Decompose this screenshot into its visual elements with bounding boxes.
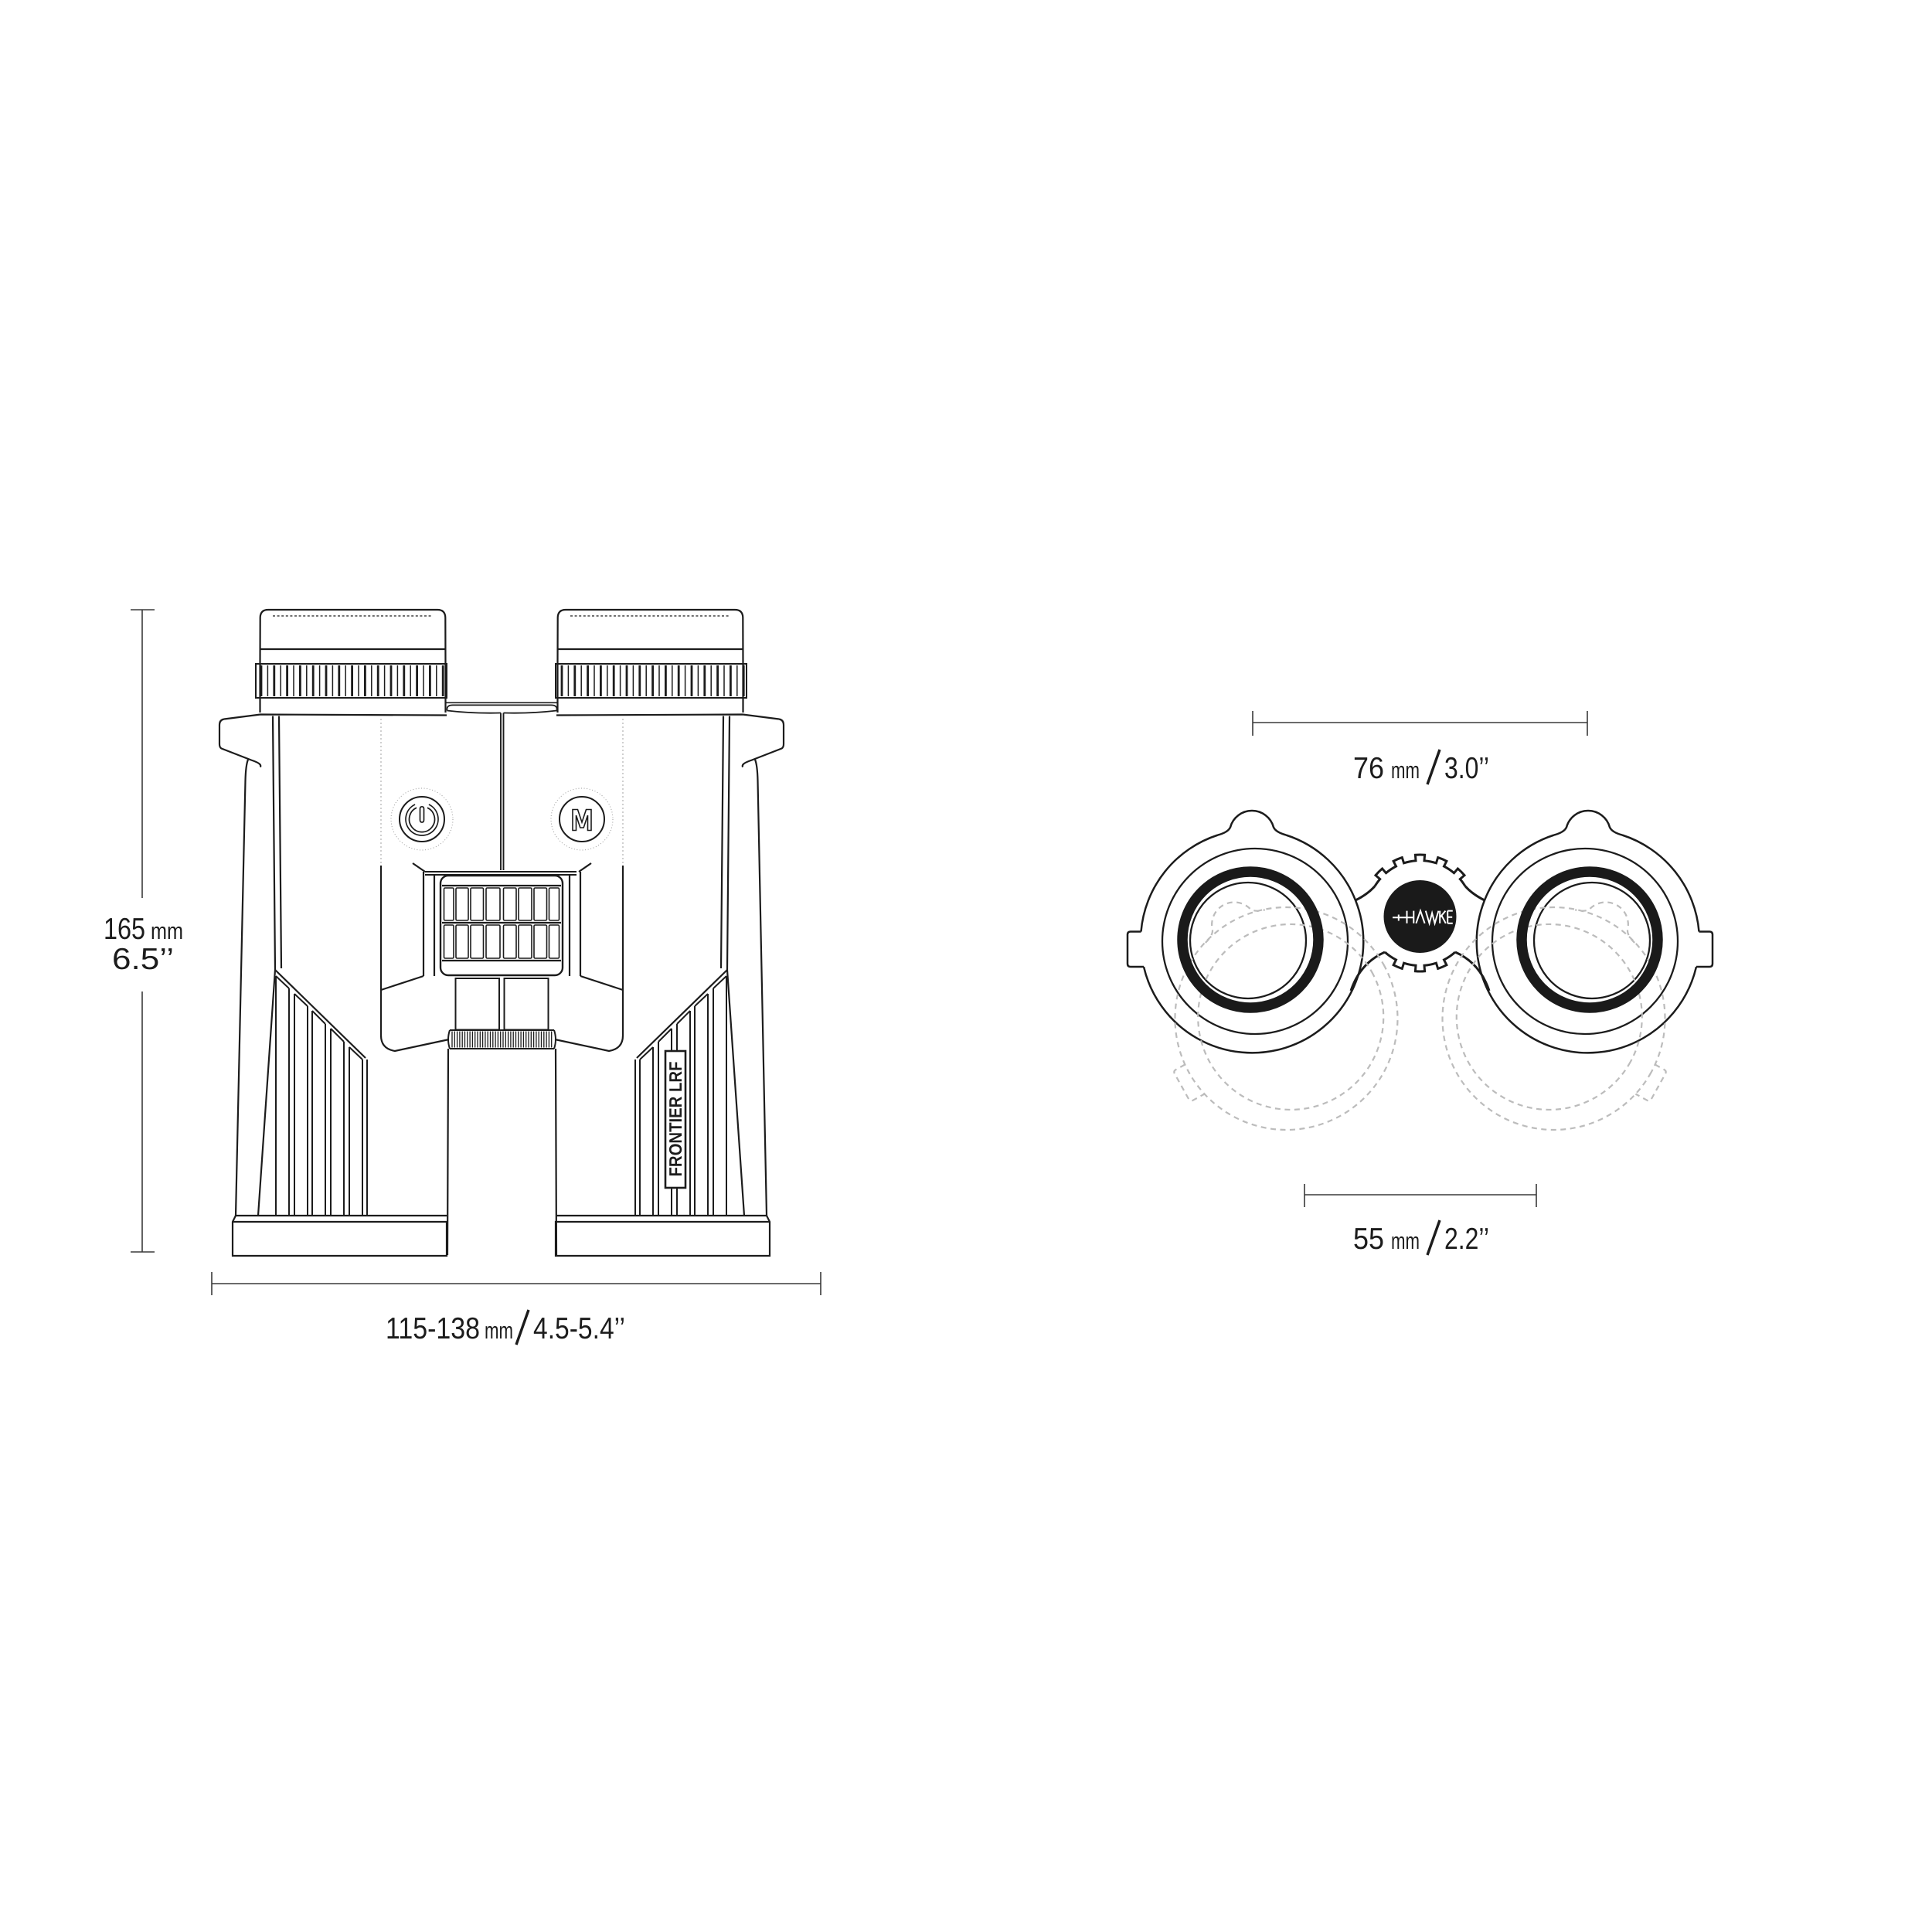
svg-text:mm: mm <box>1391 1229 1420 1254</box>
svg-text:2.2’’: 2.2’’ <box>1444 1223 1489 1256</box>
svg-text:mm: mm <box>1391 758 1420 784</box>
svg-text:FRONTIER LRF: FRONTIER LRF <box>665 1062 685 1177</box>
svg-text:mm: mm <box>151 919 183 944</box>
svg-text:165: 165 <box>104 913 145 946</box>
svg-text:4.5-5.4’’: 4.5-5.4’’ <box>533 1312 625 1345</box>
svg-text:55: 55 <box>1353 1223 1384 1256</box>
svg-text:3.0’’: 3.0’’ <box>1444 752 1489 785</box>
svg-text:115-138: 115-138 <box>386 1312 480 1345</box>
svg-text:mm: mm <box>485 1318 513 1344</box>
svg-text:6.5’’: 6.5’’ <box>112 943 174 976</box>
svg-text:76: 76 <box>1353 752 1384 785</box>
